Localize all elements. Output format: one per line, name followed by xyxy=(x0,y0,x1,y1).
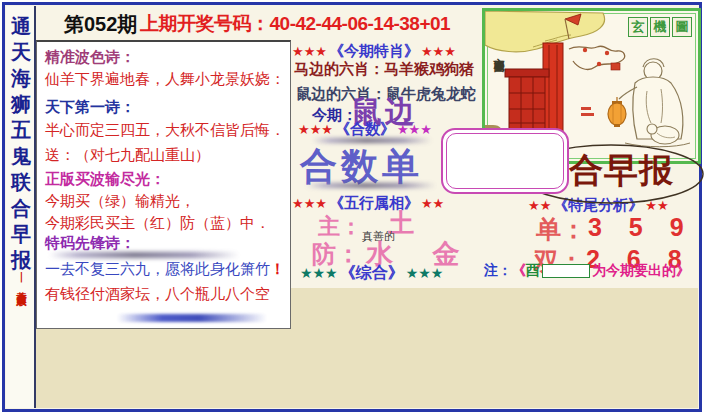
poem-line: 送：（对七九配山重山） xyxy=(45,146,210,165)
poem-heading-special-code: 特码先锋诗： xyxy=(45,234,135,253)
masthead-char: 鬼 xyxy=(9,143,33,170)
note-zodiac-char: 酉 xyxy=(526,262,540,278)
poem-heading-wave-buy: 正版买波输尽光： xyxy=(45,170,165,189)
masthead-char: 通 xyxy=(9,13,33,40)
section-title-sum: ★★★《合数》★★★ xyxy=(298,120,432,139)
horse-side-zodiacs: 马边的六肖：马羊猴鸡狗猪 xyxy=(294,60,474,79)
lottery-tip-sheet: 通 天 海 狮 五 鬼 联 合 早 报 —黄金会员版 第052期 上期开奖号码：… xyxy=(0,0,704,414)
edition-label: —黄金会员版 xyxy=(15,272,29,289)
last-draw-numbers: 上期开奖号码：40-42-44-06-14-38+01 xyxy=(140,11,450,37)
exclaim-mark: ！ xyxy=(270,260,285,277)
masthead-char: 合 xyxy=(9,195,33,222)
note-blank-box xyxy=(542,264,590,278)
ink-smudge xyxy=(306,183,436,188)
poem-line: 一去不复三六九，愿将此身化箫竹！ xyxy=(45,260,285,279)
last-draw-label: 上期开奖号码： xyxy=(140,13,270,34)
note-open-bracket: 《 xyxy=(512,262,526,278)
mystery-side-label: 玄機圖 xyxy=(491,49,506,55)
masthead-char: 联 xyxy=(9,169,33,196)
section-title-special-zodiac: ★★★《今期特肖》★★★ xyxy=(292,42,456,61)
masthead-char: 天 xyxy=(9,39,33,66)
poem-heading-first-poem: 天下第一诗： xyxy=(45,98,135,117)
ink-smudge xyxy=(117,314,267,322)
poem-line: 今期买（绿）输精光， xyxy=(45,192,195,211)
stars-icon: ★★★ xyxy=(397,122,432,137)
note-line: 注：《酉为今期要出的》 xyxy=(484,262,690,280)
stars-icon: ★★★ xyxy=(298,122,333,137)
note-prefix: 注： xyxy=(484,262,512,278)
mystery-title-char: 圖 xyxy=(672,17,692,37)
masthead-char: 报 xyxy=(9,247,33,274)
section-title-five-elements: ★★★《五行属相》★★ xyxy=(292,194,444,213)
stars-icon: ★★★ xyxy=(406,265,444,281)
blank-box-inner-border xyxy=(446,133,564,189)
poem-box: 精准波色诗： 仙羊下界遍地春，人舞小龙景妖娆： 天下第一诗： 半心而定三四五，大… xyxy=(36,40,291,329)
mystery-picture-title: 玄 機 圖 xyxy=(628,17,692,37)
masthead-char: 早 xyxy=(9,221,33,248)
ink-smudge xyxy=(49,252,239,258)
masthead-char: 五 xyxy=(9,117,33,144)
stars-icon: ★★★ xyxy=(292,44,327,59)
mystery-title-char: 機 xyxy=(650,17,670,37)
odd-tails-label: 单： xyxy=(536,213,586,246)
stars-icon: ★★ xyxy=(421,196,444,211)
note-suffix: 为今期要出的》 xyxy=(592,262,690,278)
section-title-comprehensive: ★★★《综合》★★★ xyxy=(300,263,443,284)
poem-line: 半心而定三四五，大秋不信皆后悔． xyxy=(45,121,285,140)
mystery-title-char: 玄 xyxy=(628,17,648,37)
last-draw-value: 40-42-44-06-14-38+01 xyxy=(270,13,451,34)
poem-line: 今期彩民买主（红）防（蓝）中． xyxy=(45,214,270,233)
poem-heading-wave-color: 精准波色诗： xyxy=(45,48,135,67)
poem-line: 有钱径付酒家坛，八个瓶儿八个空 xyxy=(45,285,270,304)
odd-tails-digits: 3 5 9 xyxy=(588,213,694,242)
blank-prediction-box xyxy=(441,128,569,194)
poem-line: 仙羊下界遍地春，人舞小龙景妖娆： xyxy=(45,70,285,89)
masthead-char: 狮 xyxy=(9,91,33,118)
vertical-masthead-sidebar: 通 天 海 狮 五 鬼 联 合 早 报 —黄金会员版 xyxy=(6,6,36,408)
stars-icon: ★★★ xyxy=(292,196,327,211)
issue-number: 第052期 xyxy=(64,11,137,38)
stars-icon: ★★★ xyxy=(421,44,456,59)
masthead-char: 海 xyxy=(9,65,33,92)
stars-icon: ★★★ xyxy=(300,265,338,281)
